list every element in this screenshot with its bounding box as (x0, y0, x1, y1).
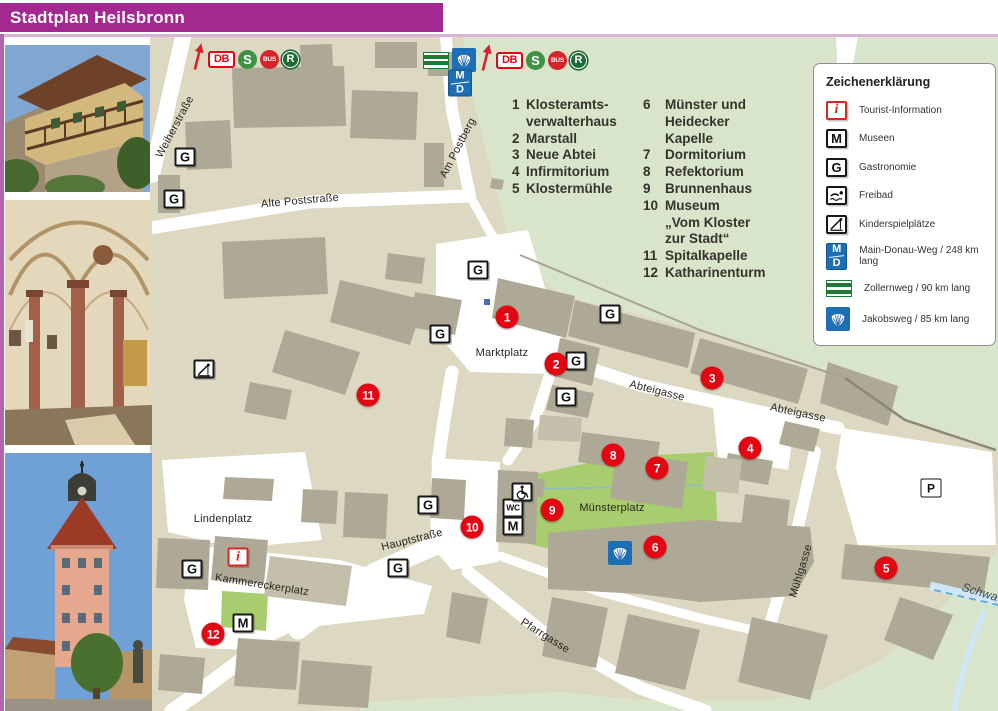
legend-label: Freibad (859, 190, 893, 201)
freibad-icon (826, 186, 847, 205)
map-legend: Zeichenerklärung iTourist-InformationMMu… (813, 63, 996, 346)
street-label: Abteigasse (628, 378, 686, 403)
poi-marker-12: 12 (202, 623, 225, 646)
poi-marker-4: 4 (739, 437, 762, 460)
street-label: Münsterplatz (579, 502, 644, 514)
street-label: Mühlgasse (787, 543, 815, 599)
gastronomy-badge: G (468, 261, 489, 280)
street-label: Pfarrgasse (518, 616, 571, 655)
parking-icon: P (921, 479, 942, 498)
street-label: Schwa (960, 580, 998, 604)
tourist-information-icon: i (826, 101, 847, 120)
tourist-information-icon: i (228, 548, 249, 567)
gastronomy-badge: G (388, 559, 409, 578)
legend-title: Zeichenerklärung (826, 75, 983, 89)
gastronomy-badge: G (826, 158, 847, 177)
street-label: Kammereckerplatz (214, 572, 310, 599)
museum-badge: M (826, 129, 847, 148)
poi-marker-7: 7 (646, 457, 669, 480)
bus-icon: BUS (548, 51, 567, 70)
bus-icon: BUS (260, 50, 279, 69)
gastronomy-badge: G (418, 496, 439, 515)
museum-badge: M (233, 614, 254, 633)
street-label: Alte Poststraße (261, 192, 340, 211)
street-label: Hauptstraße (380, 527, 444, 554)
main-donau-weg-icon: MD (826, 243, 847, 270)
db-logo-icon: DB (496, 52, 523, 69)
direction-arrow-icon (191, 42, 205, 72)
jakobsweg-shell-icon (608, 541, 632, 565)
gastronomy-badge: G (430, 325, 451, 344)
regionalbahn-icon: R (282, 51, 299, 68)
poi-marker-1: 1 (496, 306, 519, 329)
playground-icon (194, 360, 215, 379)
legend-label: Zollernweg / 90 km lang (864, 283, 970, 294)
zollernweg-icon (826, 280, 852, 297)
street-label: Abteigasse (769, 401, 827, 424)
poi-marker-10: 10 (461, 516, 484, 539)
legend-item: iTourist-Information (826, 100, 983, 120)
poi-marker-9: 9 (541, 499, 564, 522)
sbahn-icon: S (526, 51, 545, 70)
legend-item: MMuseen (826, 129, 983, 149)
legend-item: Jakobsweg / 85 km lang (826, 307, 983, 331)
direction-arrow-icon (479, 43, 493, 73)
legend-label: Museen (859, 133, 895, 144)
museum-badge: M (503, 517, 524, 536)
legend-label: Jakobsweg / 85 km lang (862, 314, 969, 325)
street-label: Marktplatz (476, 347, 529, 359)
page-title: Stadtplan Heilsbronn (0, 8, 185, 28)
legend-label: Gastronomie (859, 162, 916, 173)
gastronomy-badge: G (164, 190, 185, 209)
header-bar: Stadtplan Heilsbronn (0, 3, 443, 32)
legend-item: Zollernweg / 90 km lang (826, 279, 983, 299)
poi-marker-6: 6 (644, 536, 667, 559)
street-label: Lindenplatz (194, 513, 252, 525)
jakobsweg-shell-icon (826, 307, 850, 331)
main-donau-weg-icon: MD (448, 70, 472, 97)
gastronomy-badge: G (556, 388, 577, 407)
wheelchair-icon (512, 483, 533, 502)
db-logo-icon: DB (208, 51, 235, 68)
legend-label: Main-Donau-Weg / 248 km lang (859, 245, 983, 267)
gastronomy-badge: G (566, 352, 587, 371)
zollernweg-icon (423, 52, 449, 69)
legend-label: Kinderspielplätze (859, 219, 935, 230)
legend-item: Freibad (826, 186, 983, 206)
poi-marker-2: 2 (545, 353, 568, 376)
poi-marker-5: 5 (875, 557, 898, 580)
playground-icon (826, 215, 847, 234)
jakobsweg-shell-icon (452, 48, 476, 72)
poi-marker-8: 8 (602, 444, 625, 467)
gastronomy-badge: G (182, 560, 203, 579)
fountain-dot-icon (484, 299, 490, 305)
legend-item: MDMain-Donau-Weg / 248 km lang (826, 243, 983, 270)
street-label: Am Postberg (438, 116, 479, 180)
poi-marker-11: 11 (357, 384, 380, 407)
legend-label: Tourist-Information (859, 105, 942, 116)
transit-icon-group: DBSBUSR (191, 46, 299, 72)
sbahn-icon: S (238, 50, 257, 69)
gastronomy-badge: G (175, 148, 196, 167)
gastronomy-badge: G (600, 305, 621, 324)
legend-items: iTourist-InformationMMuseenGGastronomieF… (826, 100, 983, 331)
poi-marker-3: 3 (701, 367, 724, 390)
regionalbahn-icon: R (570, 52, 587, 69)
legend-item: Kinderspielplätze (826, 214, 983, 234)
legend-item: GGastronomie (826, 157, 983, 177)
